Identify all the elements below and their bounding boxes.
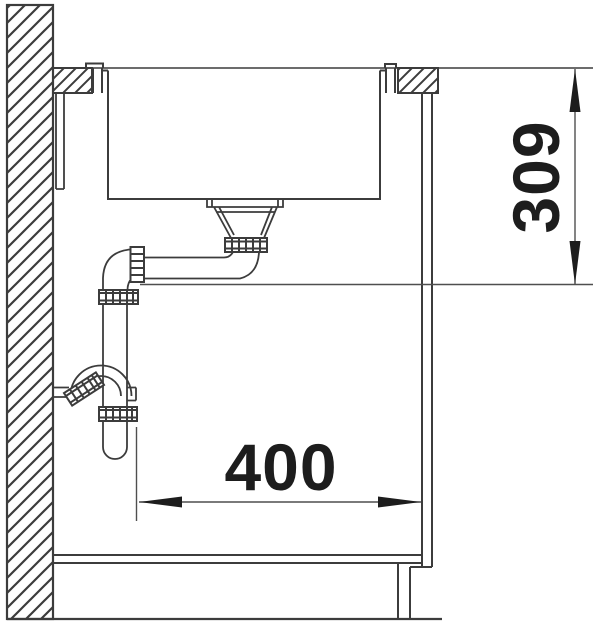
trap-inlet-nut (99, 290, 138, 304)
arrowhead-down-icon (570, 241, 581, 285)
sink-installation-diagram: 309 400 (0, 0, 601, 625)
strainer-locknut (225, 238, 267, 252)
elbow-bend (103, 250, 130, 291)
drain-assembly (53, 199, 283, 459)
tailpipe (144, 252, 259, 279)
countertop-left-block (53, 68, 92, 93)
dimension-depth-309: 309 (140, 69, 593, 285)
wall-hatch-fill (7, 5, 53, 619)
sink-bowl-outline (108, 71, 380, 200)
diagram-canvas: 309 400 (0, 0, 601, 625)
elbow-nut (131, 247, 145, 282)
wall-batten (56, 94, 64, 189)
cabinet-side-panel (410, 93, 432, 567)
width-dimension-label: 400 (224, 430, 337, 504)
countertop (53, 68, 593, 93)
countertop-right-block (398, 68, 438, 93)
cabinet (7, 93, 442, 619)
arrowhead-right-icon (378, 497, 421, 508)
wall-section (7, 5, 53, 619)
trap-outlet-nut (64, 372, 104, 405)
cabinet-bottom-shelf (53, 555, 422, 563)
depth-dimension-label: 309 (499, 120, 573, 233)
trap-lower-nut (99, 407, 137, 421)
dimension-width-400: 400 (137, 427, 422, 521)
sink-bowl-group (86, 64, 396, 200)
arrowhead-left-icon (139, 497, 182, 508)
strainer-body (207, 199, 283, 238)
plinth-panel (398, 563, 410, 619)
arrowhead-up-icon (570, 69, 581, 112)
